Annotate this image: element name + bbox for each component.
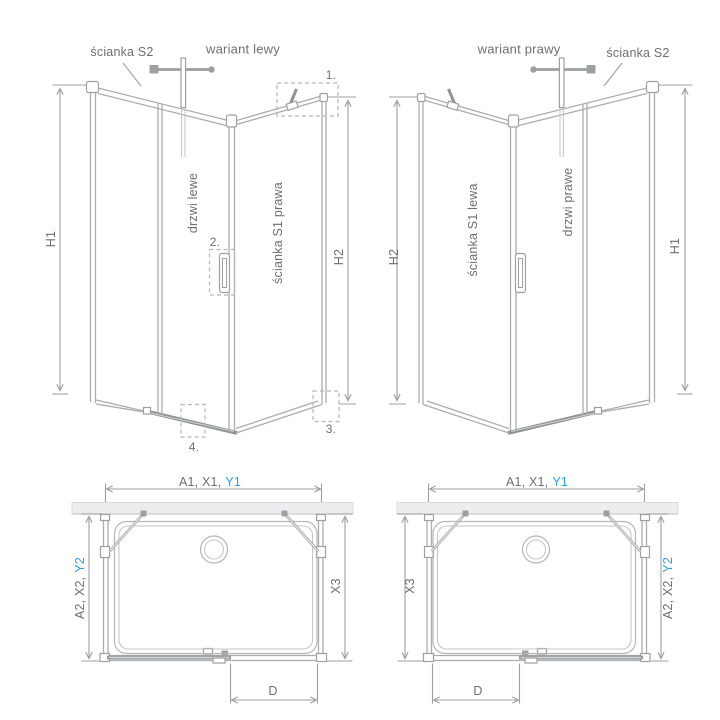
dim-h2-label-right: H2	[387, 249, 401, 265]
variant-title-left: wariant lewy	[206, 42, 280, 57]
shower-tray	[115, 522, 318, 654]
enclosure-3d-drawing-mirrored	[389, 58, 693, 433]
callout-3-label: 3.	[326, 422, 336, 436]
dim-depth-gray: A2, X2,	[73, 577, 87, 619]
s1-corner-cap	[320, 94, 328, 102]
top-rail	[98, 94, 228, 127]
corner-connector	[87, 82, 99, 93]
door-label-right: drzwi prawe	[561, 168, 575, 237]
wall-bracket	[101, 515, 110, 521]
corner-brace	[282, 511, 319, 552]
enclosure-plan-drawing	[72, 484, 353, 704]
s1-top-edge	[237, 100, 322, 125]
dim-x3-label-right: X3	[403, 578, 417, 594]
dim-width-accent: Y1	[225, 475, 241, 489]
callout-4-label: 4.	[189, 440, 199, 454]
s1-top-edge	[237, 96, 322, 121]
dim-width-label: A1, X1,Y1	[179, 475, 241, 489]
diagram-canvas	[0, 0, 720, 720]
s2-leader-line	[123, 63, 141, 86]
s1-bottom-edge	[236, 401, 318, 429]
building-wall	[72, 503, 353, 515]
shower-tray-inner	[119, 526, 313, 649]
dim-x3-label: X3	[329, 578, 343, 594]
support-post	[181, 58, 186, 108]
dim-depth-accent: Y2	[73, 557, 87, 573]
track-corner	[317, 654, 327, 662]
dim-width-gray: A1, X1,	[179, 475, 221, 489]
dim-width-accent-right: Y1	[552, 475, 568, 489]
dim-door-label-right: D	[473, 684, 482, 698]
dim-depth-gray-right: A2, X2,	[661, 577, 675, 619]
dim-door-label: D	[268, 684, 277, 698]
dim-width-gray-right: A1, X1,	[506, 475, 548, 489]
wall-bracket	[101, 547, 110, 558]
dim-h2-label: H2	[332, 249, 346, 265]
door-label: drzwi lewe	[186, 173, 200, 233]
shower-enclosure-diagram: ścianka S2 wariant lewy drzwi lewe ścian…	[0, 0, 720, 720]
dim-depth-label-right: A2, X2,Y2	[661, 557, 675, 619]
dim-depth-label: A2, X2,Y2	[73, 557, 87, 619]
wall-s1-label-right: ścianka S1 lewa	[466, 183, 480, 276]
variant-title-right: wariant prawy	[478, 42, 561, 57]
dim-depth-accent-right: Y2	[661, 557, 675, 573]
drain-inner	[205, 540, 224, 559]
wall-s2-label-right: ścianka S2	[606, 46, 669, 60]
corner-post-cap	[227, 115, 237, 127]
wall-s2-label: ścianka S2	[90, 45, 153, 59]
callout-2-label: 2.	[210, 235, 220, 249]
front-bottom-edge	[96, 404, 150, 413]
callout-boxes	[181, 83, 339, 437]
dim-h1-label: H1	[44, 231, 58, 247]
support-bar-wall-anchor	[208, 66, 214, 72]
door-guide	[213, 658, 225, 663]
wall-bracket	[317, 515, 326, 521]
door-stop	[222, 651, 229, 656]
track-end-cap	[144, 408, 151, 415]
callout-1-label: 1.	[326, 68, 336, 82]
s1-clamp-base	[286, 101, 298, 110]
bottom-track-highlight	[150, 413, 234, 432]
wall-s1-label: ścianka S1 prawa	[271, 182, 285, 284]
support-bar-clamp	[150, 65, 159, 74]
top-rail	[98, 88, 228, 121]
door-handle	[220, 254, 230, 293]
s1-bottom-edge	[236, 405, 322, 434]
enclosure-3d-drawing	[53, 58, 357, 433]
dim-h1-label-right: H1	[668, 238, 682, 254]
dim-width-label-right: A1, X1,Y1	[506, 475, 568, 489]
enclosure-plan-drawing-mirrored	[397, 484, 678, 704]
